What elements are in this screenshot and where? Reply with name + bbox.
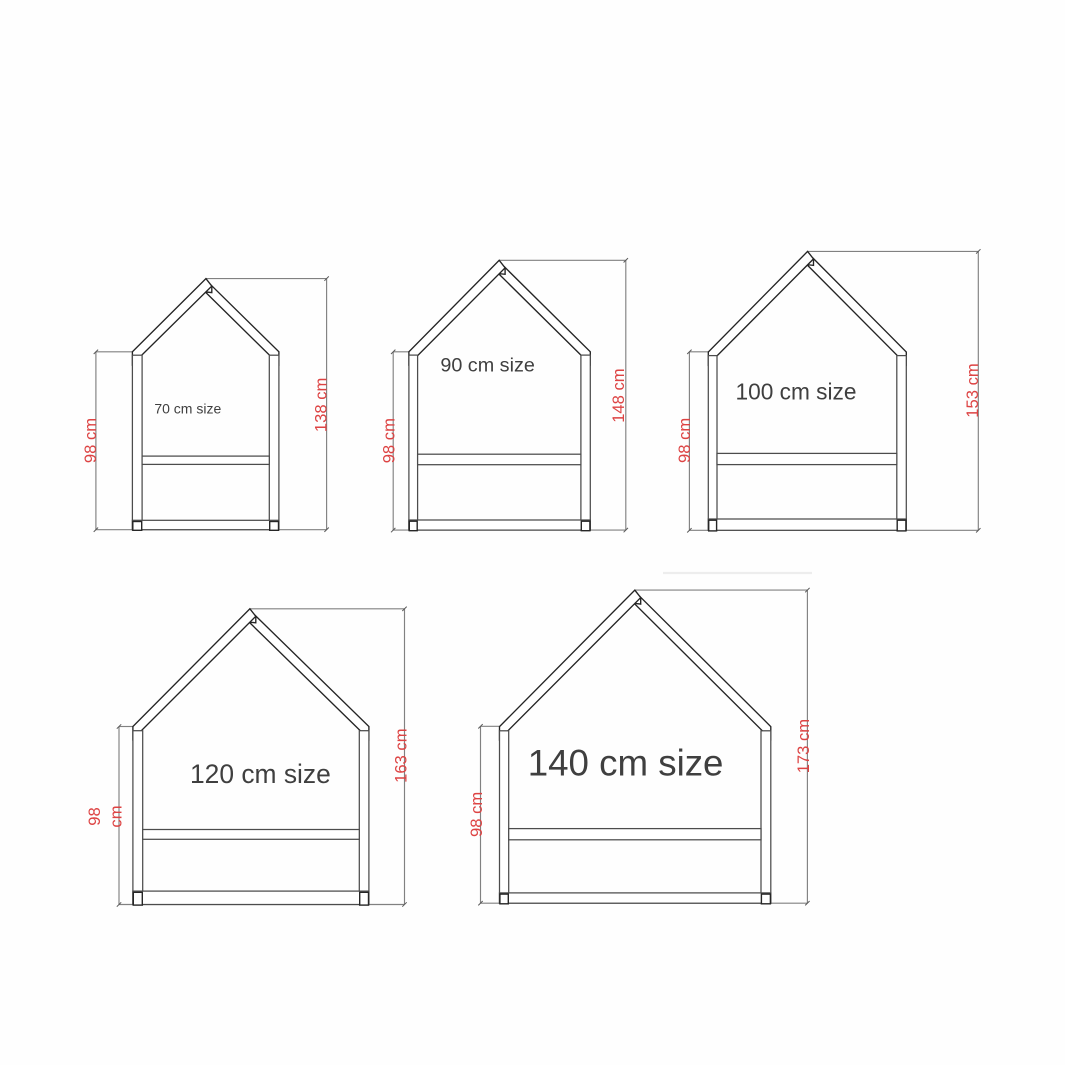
svg-text:70 cm size: 70 cm size bbox=[154, 401, 221, 417]
svg-text:98 cm: 98 cm bbox=[379, 418, 398, 463]
svg-text:140 cm size: 140 cm size bbox=[528, 742, 724, 783]
svg-text:cm: cm bbox=[107, 805, 126, 827]
svg-text:98 cm: 98 cm bbox=[675, 418, 694, 463]
svg-text:153 cm: 153 cm bbox=[963, 363, 982, 417]
svg-text:98 cm: 98 cm bbox=[467, 792, 486, 837]
svg-text:100 cm size: 100 cm size bbox=[735, 379, 856, 405]
svg-text:98 cm: 98 cm bbox=[81, 418, 100, 463]
svg-text:98: 98 bbox=[85, 807, 104, 825]
svg-text:120 cm size: 120 cm size bbox=[190, 759, 331, 789]
svg-text:138 cm: 138 cm bbox=[312, 378, 331, 432]
svg-text:163 cm: 163 cm bbox=[392, 728, 411, 782]
svg-text:90 cm size: 90 cm size bbox=[440, 355, 535, 377]
svg-text:148 cm: 148 cm bbox=[609, 368, 628, 422]
svg-text:173 cm: 173 cm bbox=[794, 719, 813, 773]
